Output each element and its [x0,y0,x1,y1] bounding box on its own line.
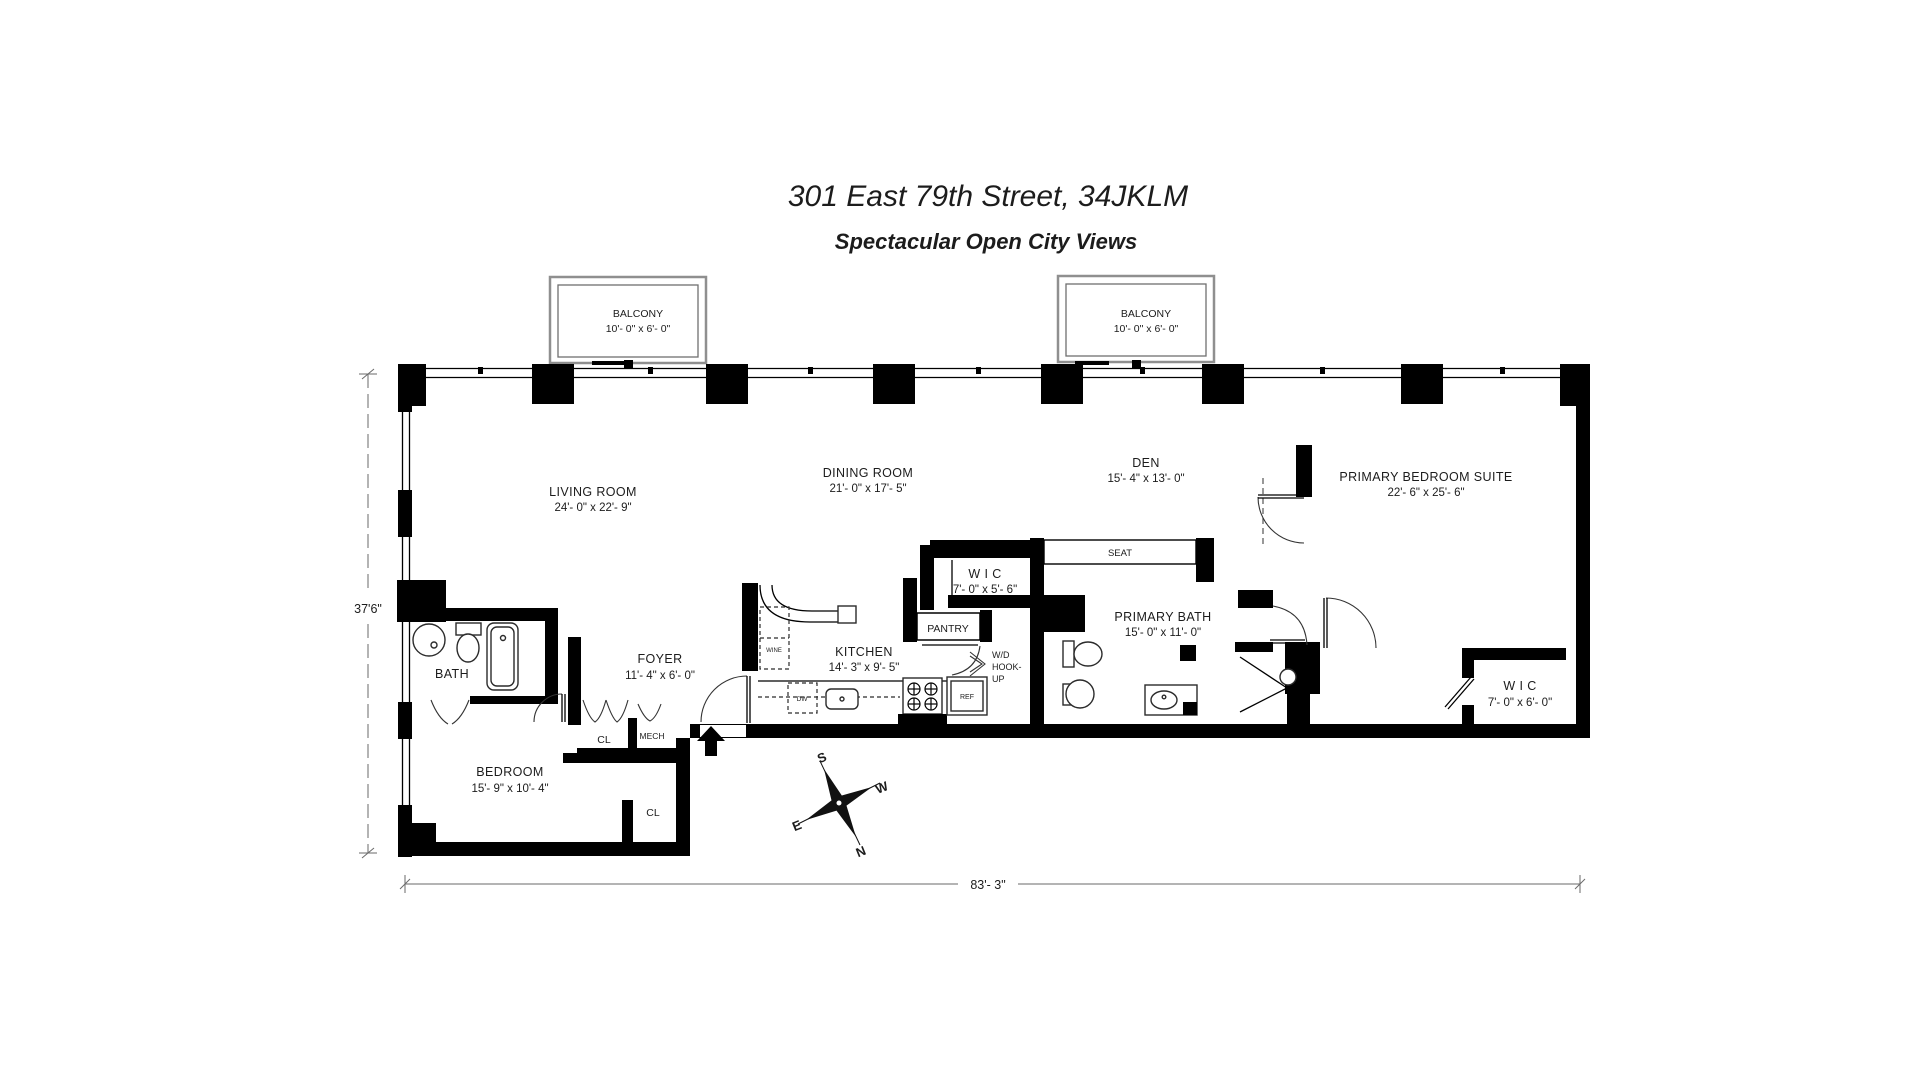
compass-north-label: N [854,843,868,860]
foyer-label: FOYER [637,652,682,666]
wic-center-label: W I C [968,567,1001,581]
page-title: 301 East 79th Street, 34JKLM [788,180,1188,213]
bedroom-closet-label: CL [646,807,660,819]
kitchen-dims: 14'- 3" x 9'- 5" [829,662,900,674]
dw-label: DW [797,696,809,703]
wd-label-3: UP [992,674,1005,684]
balcony-1-dims: 10'- 0" x 6'- 0" [606,323,671,335]
stove-icon [898,678,947,724]
mech-closet-label: MECH [639,731,664,741]
primary-bath-dims: 15'- 0" x 11'- 0" [1125,627,1201,639]
primary-toilet-icon [1063,641,1074,667]
seat-label: SEAT [1108,548,1132,559]
ref-label: REF [960,694,974,701]
wic-right-label: W I C [1503,679,1536,693]
balcony-1-name: BALCONY [613,308,663,320]
foyer-dims: 11'- 4" x 6'- 0" [625,670,695,682]
page-subtitle: Spectacular Open City Views [835,229,1137,254]
width-dimension-label: 83'- 3" [970,878,1005,892]
primary-suite-label: PRIMARY BEDROOM SUITE [1339,470,1512,484]
kitchen-label: KITCHEN [835,645,893,659]
pantry-label: PANTRY [927,623,969,635]
den-dims: 15'- 4" x 13'- 0" [1107,473,1184,485]
primary-bath-room: PRIMARY BATH 15'- 0" x 11'- 0" [1063,590,1320,736]
compass-south-label: S [815,749,829,766]
wic-right-dims: 7'- 0" x 6'- 0" [1488,697,1552,709]
width-dimension: 83'- 3" [400,875,1585,893]
primary-suite-dims: 22'- 6" x 25'- 6" [1387,487,1464,499]
balcony-2-name: BALCONY [1121,308,1171,320]
wine-label: WINE [766,648,782,654]
balcony-1: BALCONY 10'- 0" x 6'- 0" [550,277,706,369]
bedroom-dims: 15'- 9" x 10'- 4" [471,783,548,795]
height-dimension: 37'6" [354,369,382,858]
dining-room-label: DINING ROOM [823,466,914,480]
wd-label-2: HOOK- [992,662,1022,672]
wic-center-room: W I C 7'- 0" x 5'- 6" [920,540,1032,610]
wic-right-room: W I C 7'- 0" x 6'- 0" [1445,648,1566,735]
bath-sink-icon [413,624,445,656]
floor-plan-page: 301 East 79th Street, 34JKLM Spectacular… [0,0,1920,1080]
floor-plan-drawing: 301 East 79th Street, 34JKLM Spectacular… [0,0,1920,1080]
refrigerator-icon: REF [947,677,987,715]
balcony-2-dims: 10'- 0" x 6'- 0" [1114,323,1179,335]
bath-room: BATH [413,608,558,724]
den-label: DEN [1132,456,1160,470]
living-room-label: LIVING ROOM [549,485,637,499]
wic-center-dims: 7'- 0" x 5'- 6" [953,584,1017,596]
bedroom-label: BEDROOM [476,765,543,779]
shower-icon [1240,657,1287,688]
exterior-walls [397,364,1590,857]
height-dimension-label: 37'6" [354,602,382,616]
compass-west-label: W [873,778,891,797]
bath-toilet-icon [456,623,481,635]
balcony-2: BALCONY 10'- 0" x 6'- 0" [1058,276,1214,369]
foyer-area: CL MECH FOYER 11'- 4" x 6'- 0" [568,637,750,757]
living-room-dims: 24'- 0" x 22'- 9" [554,502,631,514]
foyer-closet-label: CL [597,734,611,746]
dining-room-dims: 21'- 0" x 17'- 5" [829,483,906,495]
compass-icon: S W E N [790,749,891,860]
compass-east-label: E [790,817,804,834]
primary-bath-label: PRIMARY BATH [1114,610,1211,624]
wd-label-1: W/D [992,650,1010,660]
bath-label: BATH [435,667,469,681]
